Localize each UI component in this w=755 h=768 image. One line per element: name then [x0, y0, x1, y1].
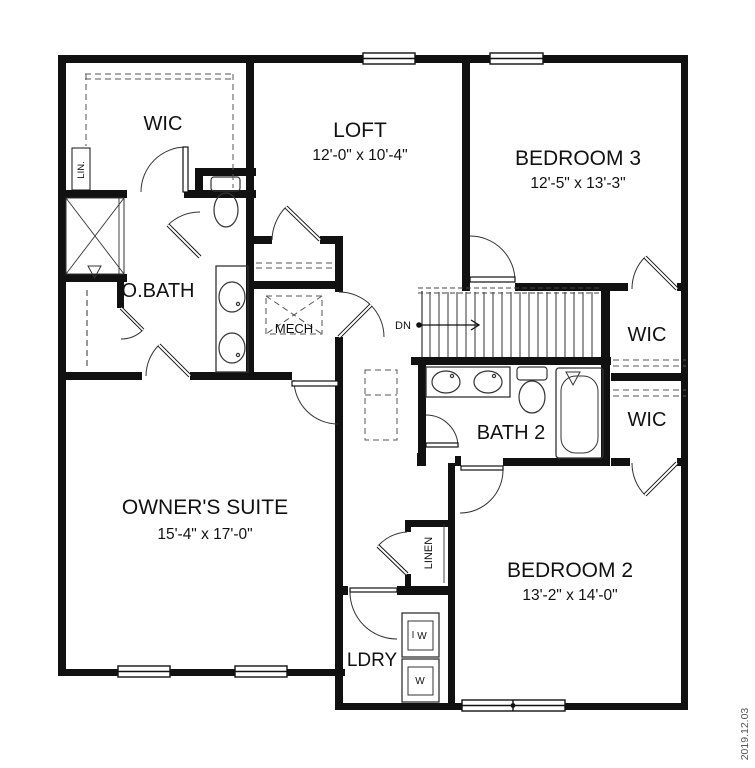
label-bath2: BATH 2 — [477, 422, 546, 444]
wic-bed3-shelf — [613, 360, 686, 366]
door-wic-master — [141, 147, 188, 192]
date-stamp: 2019.12.03 — [739, 708, 751, 761]
label-wic-bed2: WIC — [628, 409, 667, 431]
window — [118, 666, 170, 677]
door-obath — [146, 345, 190, 376]
label-obath: O.BATH — [122, 280, 195, 302]
vanity-bath2 — [426, 367, 510, 397]
label-owners-suite: OWNER'S SUITE — [122, 496, 288, 519]
label-dn: DN — [395, 320, 411, 332]
toilet-bath2 — [517, 367, 547, 413]
window-double — [462, 700, 565, 711]
dims-bedroom2: 13'-2" x 14'-0" — [522, 587, 617, 604]
wall-bottom-left — [58, 669, 345, 676]
door-bedroom3 — [470, 236, 515, 282]
label-washer: W — [417, 631, 427, 642]
toilet-obath — [211, 177, 240, 227]
label-lin: LIN. — [76, 161, 87, 178]
label-linen: LINEN — [423, 537, 435, 569]
loft-closet-shelf — [256, 263, 334, 268]
door-loft-closet — [272, 207, 320, 240]
floor-plan-page: WIC LOFT 12'-0" x 10'-4" BEDROOM 3 12'-5… — [0, 0, 755, 768]
dims-owners-suite: 15'-4" x 17'-0" — [157, 526, 252, 543]
label-loft: LOFT — [333, 119, 387, 142]
window — [235, 666, 287, 677]
floor-plan-canvas: WIC LOFT 12'-0" x 10'-4" BEDROOM 3 12'-5… — [0, 0, 755, 768]
door-bedroom2 — [460, 466, 503, 513]
door-wic-bed3 — [632, 257, 677, 289]
bathtub — [556, 368, 603, 458]
label-bedroom2: BEDROOM 2 — [507, 559, 633, 582]
vanity-obath — [216, 266, 248, 372]
label-dryer: W — [415, 676, 425, 687]
label-mech: MECH — [275, 321, 313, 336]
label-bedroom3: BEDROOM 3 — [515, 147, 641, 170]
labels: WIC LOFT 12'-0" x 10'-4" BEDROOM 3 12'-5… — [76, 113, 751, 760]
wic-bed2-shelf — [613, 390, 686, 396]
shower — [66, 198, 124, 278]
door-ldry — [350, 588, 397, 639]
door-wic-bed2 — [632, 463, 677, 495]
dims-bedroom3: 12'-5" x 13'-3" — [530, 175, 625, 192]
door-bath2 — [426, 415, 458, 447]
attic-access-dashed — [365, 370, 397, 440]
label-wic-master: WIC — [144, 113, 183, 135]
window — [490, 53, 543, 64]
label-ldry: LDRY — [347, 650, 398, 671]
staircase — [416, 288, 601, 357]
door-obath-closet — [121, 308, 143, 339]
door-owners-suite — [292, 380, 338, 424]
window — [363, 53, 415, 64]
wall-right — [681, 55, 688, 710]
door-mech — [339, 292, 384, 337]
door-water-closet — [168, 212, 200, 257]
dims-loft: 12'-0" x 10'-4" — [312, 147, 407, 164]
label-wic-bed3: WIC — [628, 324, 667, 346]
door-linen — [378, 532, 407, 574]
wall-left — [58, 55, 66, 676]
